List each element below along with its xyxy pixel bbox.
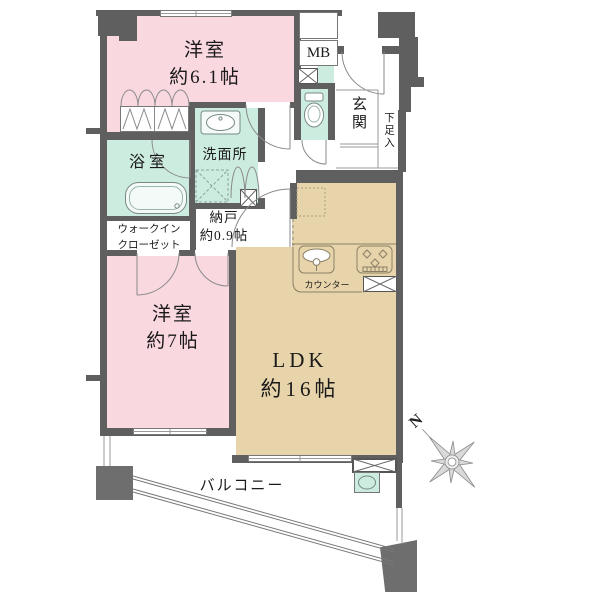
pillar-top-right-c (399, 83, 411, 112)
floor-plan: N 洋室 約6.1帖 洋室 約7帖 LDK 約16帖 浴室 洗面所 ウォークイン… (0, 0, 600, 600)
ldk-name: LDK (219, 346, 381, 375)
label-wic: ウォークイン クローゼット (109, 222, 189, 254)
label-washroom: 洗面所 (193, 146, 257, 166)
bathroom-name: 浴室 (129, 154, 169, 171)
wall-bed61-bottom-left (104, 132, 189, 140)
closet-bedroom-6-1 (120, 106, 189, 132)
bedroom-7-name: 洋室 (112, 302, 234, 329)
shoe-cabinet-name: 下足入 (383, 112, 394, 150)
door-entrance (342, 52, 384, 94)
bedroom-6-1-name: 洋室 (130, 38, 280, 65)
wall-entry-stub-right (382, 46, 400, 54)
bedroom-7-size: 約7帖 (112, 329, 234, 356)
label-balcony: バルコニー (178, 476, 306, 497)
label-shoe-cabinet: 下足入 (381, 112, 396, 150)
wall-shoe-right (398, 110, 406, 172)
kitchen-counter-name: カウンター (304, 280, 349, 290)
cabinet-hatch-balcony (352, 458, 397, 473)
shaft-box (298, 68, 318, 84)
wall-kitchen-left-stub (290, 183, 297, 219)
bedroom-6-1-size: 約6.1帖 (130, 65, 280, 92)
label-ldk: LDK 約16帖 (219, 346, 381, 405)
balcony-name: バルコニー (200, 478, 285, 494)
door-toilet (302, 140, 326, 164)
cabinet-hatch-kitchen (363, 276, 397, 292)
wic-line2: クローゼット (109, 238, 189, 254)
compass-icon: N (400, 409, 497, 507)
door-opening-bed61 (246, 102, 290, 108)
balcony-pillar-left (96, 466, 133, 500)
pillar-top-right-a (378, 12, 415, 38)
wall-tick-left-1 (86, 128, 102, 134)
door-opening-nando (195, 250, 228, 256)
label-bedroom-6-1: 洋室 約6.1帖 (130, 38, 280, 91)
window-bedroom-6-1 (160, 10, 232, 17)
wall-ldk-right (396, 172, 403, 462)
wic-line1: ウォークイン (109, 222, 189, 238)
label-entrance: 玄関 (348, 96, 369, 132)
wall-bath-wic (104, 216, 194, 221)
pillar-top-left (98, 10, 137, 36)
label-bathroom: 浴室 (116, 152, 182, 174)
wall-tick-left-2 (86, 375, 102, 381)
label-kitchen-counter: カウンター (296, 279, 358, 292)
meter-box-upper (299, 12, 338, 39)
room-toilet (301, 89, 328, 140)
label-bedroom-7: 洋室 約7帖 (112, 302, 234, 355)
ldk-size: 約16帖 (219, 375, 381, 404)
pipe-space-box (240, 189, 257, 207)
slop-sink (354, 472, 380, 493)
label-nando: 納戸 約0.9帖 (192, 209, 256, 245)
compass-north-label: N (406, 411, 426, 432)
room-ldk-kitchen (292, 183, 396, 455)
window-bedroom-7 (133, 428, 207, 435)
wall-left (100, 10, 107, 436)
entrance-name: 玄関 (350, 96, 366, 132)
balcony-pillar-right (380, 540, 417, 592)
room-bedroom-6-1-strip (107, 106, 121, 134)
meter-box-name: MB (307, 45, 330, 61)
wall-hall-kitchen (296, 170, 403, 183)
nando-size: 約0.9帖 (192, 227, 256, 245)
window-ldk (248, 455, 352, 462)
nando-name: 納戸 (192, 209, 256, 227)
door-opening-washroom (258, 162, 265, 198)
pillar-top-right-step (411, 77, 424, 87)
label-meter-box: MB (299, 43, 338, 64)
wall-toilet-right (328, 89, 335, 140)
washroom-name: 洗面所 (203, 148, 248, 163)
